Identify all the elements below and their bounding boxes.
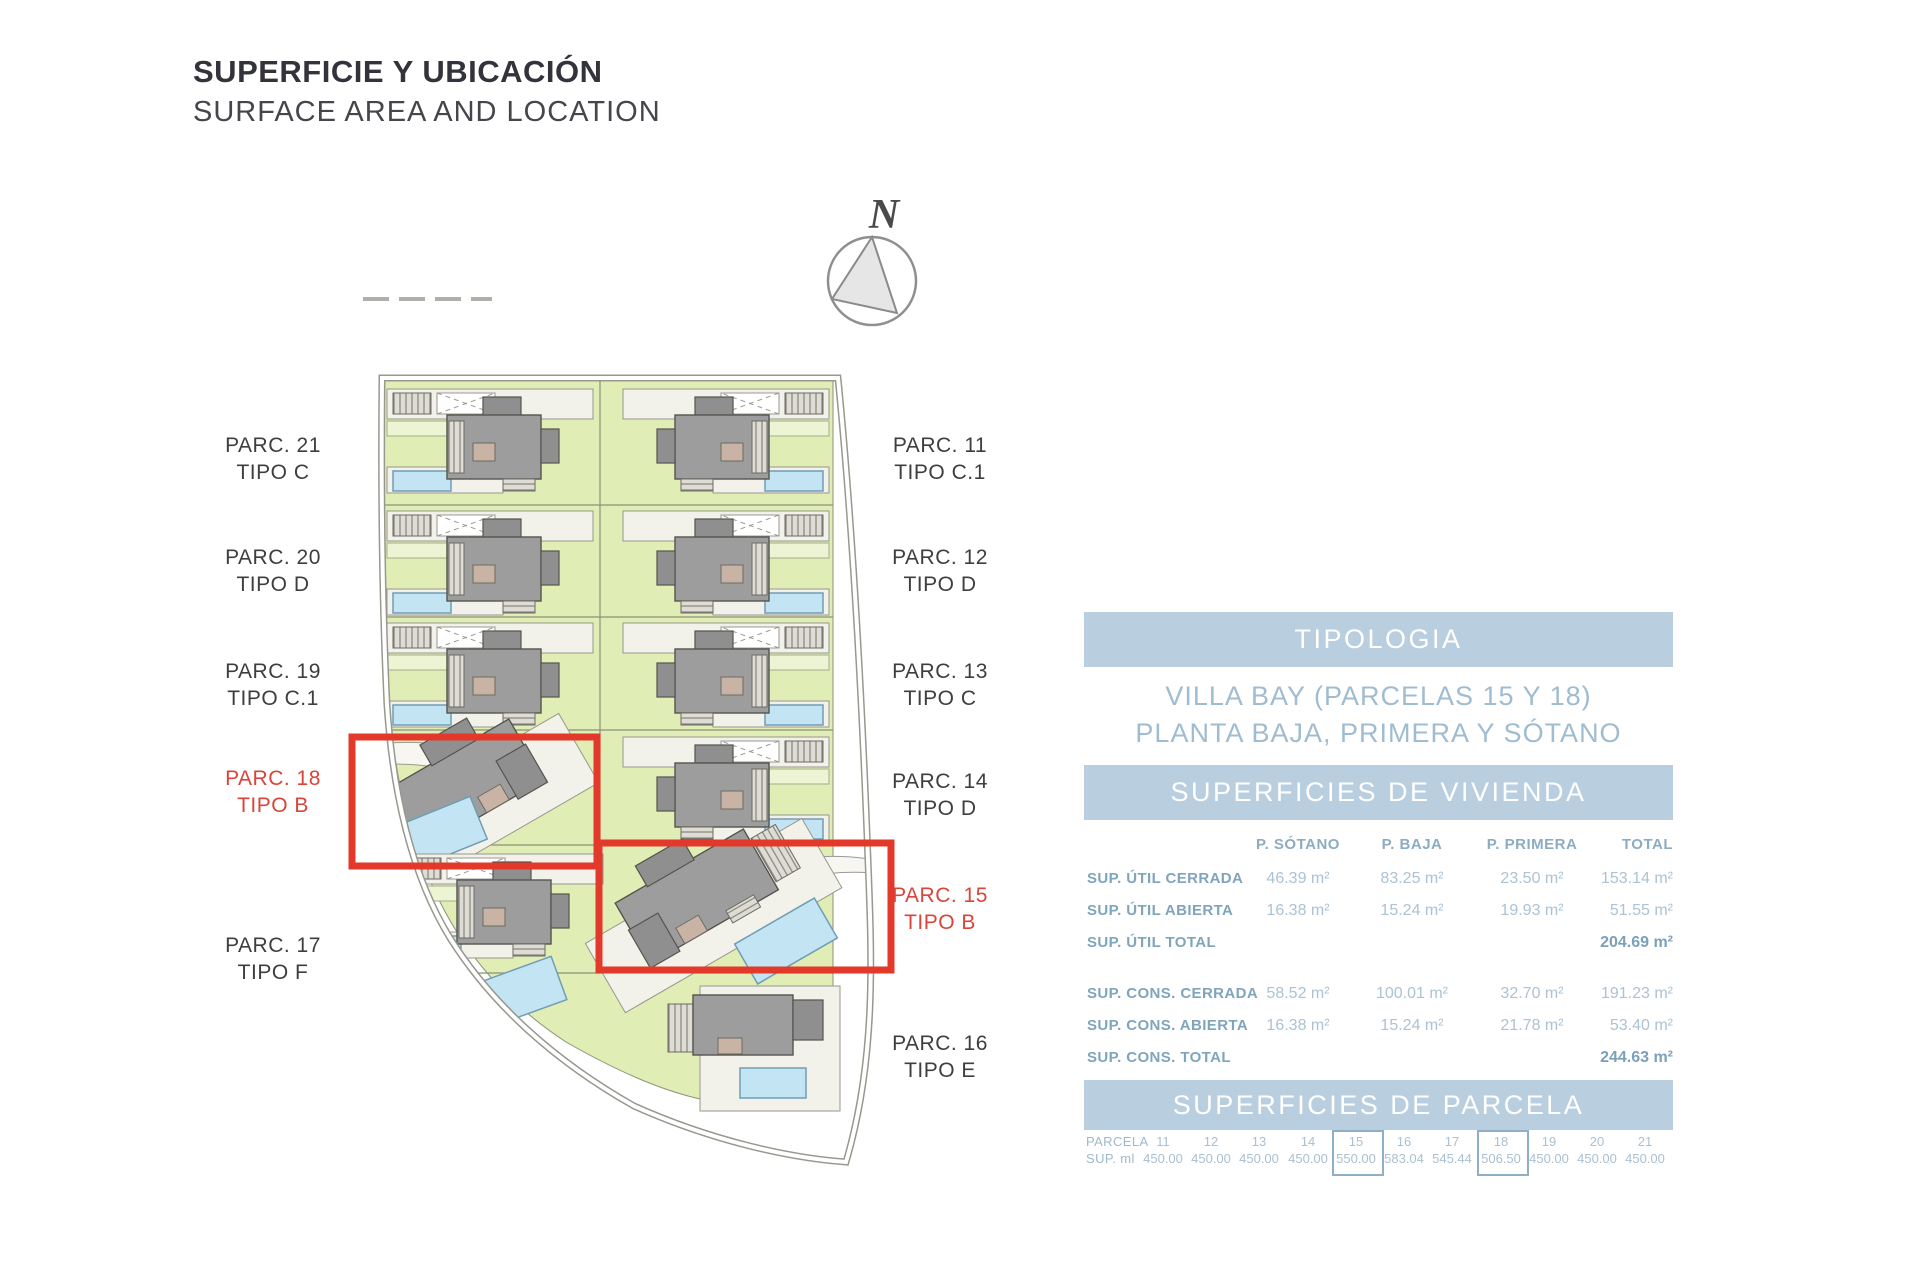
label-parcel-20: PARC. 20 TIPO D xyxy=(188,544,358,598)
parcela-sup-row: SUP. ml 450.00 450.00 450.00 450.00 550.… xyxy=(1084,1151,1673,1167)
label-parcel-15: PARC. 15 TIPO B xyxy=(855,882,1025,936)
parcela-header: SUPERFICIES DE PARCELA xyxy=(1084,1080,1673,1130)
page-title: SUPERFICIE Y UBICACIÓN xyxy=(193,54,602,90)
label-parcel-17: PARC. 17 TIPO F xyxy=(188,932,358,986)
compass-north-label: N xyxy=(868,192,901,238)
tipologia-header: TIPOLOGIA xyxy=(1084,612,1673,667)
label-parcel-13: PARC. 13 TIPO C xyxy=(855,658,1025,712)
table-row: SUP. CONS. TOTAL 244.63 m² xyxy=(1084,1049,1673,1073)
page-subtitle: SURFACE AREA AND LOCATION xyxy=(193,96,661,129)
table-row: SUP. CONS. ABIERTA 16.38 m² 15.24 m² 21.… xyxy=(1084,1017,1673,1041)
parcela-number-row: PARCELA 11 12 13 14 15 16 17 18 19 20 21 xyxy=(1084,1134,1673,1150)
table-row: SUP. CONS. CERRADA 58.52 m² 100.01 m² 32… xyxy=(1084,985,1673,1009)
col-baja: P. BAJA xyxy=(1352,836,1472,853)
label-parcel-19: PARC. 19 TIPO C.1 xyxy=(188,658,358,712)
tipologia-line1: VILLA BAY (PARCELAS 15 Y 18) xyxy=(1084,678,1673,715)
tipologia-line2: PLANTA BAJA, PRIMERA Y SÓTANO xyxy=(1084,715,1673,752)
label-parcel-21: PARC. 21 TIPO C xyxy=(188,432,358,486)
tipologia-description: VILLA BAY (PARCELAS 15 Y 18) PLANTA BAJA… xyxy=(1084,678,1673,752)
label-parcel-18: PARC. 18 TIPO B xyxy=(188,765,358,819)
label-parcel-16: PARC. 16 TIPO E xyxy=(855,1030,1025,1084)
vivienda-header: SUPERFICIES DE VIVIENDA xyxy=(1084,765,1673,820)
north-compass: N xyxy=(828,192,916,325)
vivienda-column-headers: P. SÓTANO P. BAJA P. PRIMERA TOTAL xyxy=(1084,836,1673,860)
label-parcel-12: PARC. 12 TIPO D xyxy=(855,544,1025,598)
label-parcel-11: PARC. 11 TIPO C.1 xyxy=(855,432,1025,486)
table-row: SUP. ÚTIL ABIERTA 16.38 m² 15.24 m² 19.9… xyxy=(1084,902,1673,926)
brochure-page: N SUPERFICIE Y UBICACIÓN SURFACE AREA AN… xyxy=(0,0,1920,1280)
col-total: TOTAL xyxy=(1553,836,1673,853)
label-parcel-14: PARC. 14 TIPO D xyxy=(855,768,1025,822)
site-interior xyxy=(321,379,886,1111)
col-sotano: P. SÓTANO xyxy=(1238,836,1358,853)
table-row: SUP. ÚTIL CERRADA 46.39 m² 83.25 m² 23.5… xyxy=(1084,870,1673,894)
table-row: SUP. ÚTIL TOTAL 204.69 m² xyxy=(1084,934,1673,958)
